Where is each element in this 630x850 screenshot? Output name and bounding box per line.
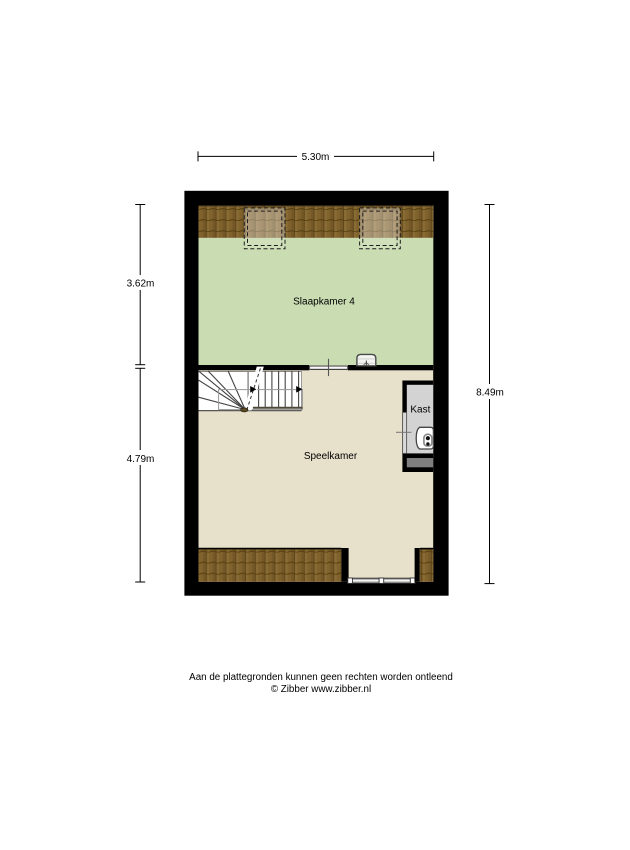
svg-text:8.49m: 8.49m xyxy=(476,388,504,399)
svg-text:Kast: Kast xyxy=(410,405,430,416)
svg-text:Aan de plattegronden kunnen ge: Aan de plattegronden kunnen geen rechten… xyxy=(189,672,453,683)
svg-text:© Zibber www.zibber.nl: © Zibber www.zibber.nl xyxy=(271,684,371,695)
svg-text:Slaapkamer 4: Slaapkamer 4 xyxy=(293,297,355,308)
svg-text:4.79m: 4.79m xyxy=(127,454,155,465)
svg-text:5.30m: 5.30m xyxy=(302,152,330,163)
svg-text:3.62m: 3.62m xyxy=(127,279,155,290)
svg-text:Speelkamer: Speelkamer xyxy=(304,451,358,462)
